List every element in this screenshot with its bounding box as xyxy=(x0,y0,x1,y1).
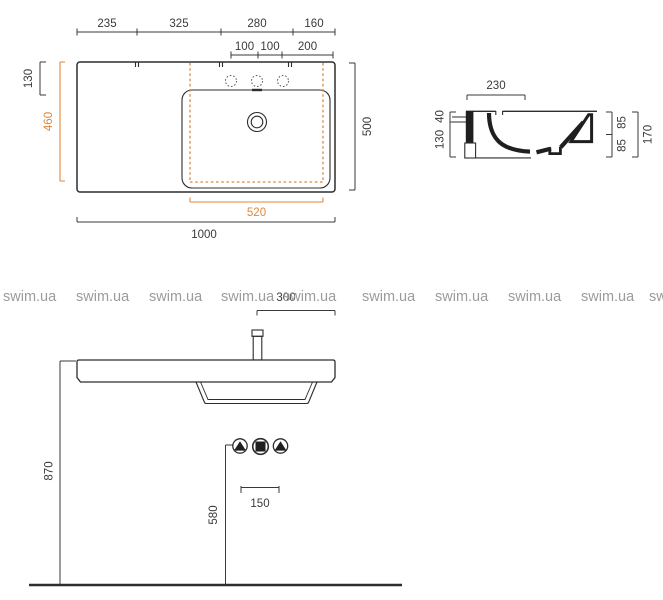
watermark: swim.ua xyxy=(649,289,663,305)
dim-hole-seg-1: 100 xyxy=(235,41,254,53)
watermark: swim.ua xyxy=(581,289,634,305)
dim-rear-lower: 85 xyxy=(617,139,629,152)
front-dim-outlet-height: 580 xyxy=(208,445,233,585)
plan-dim-row2: 100 100 200 xyxy=(231,41,333,59)
wall-fixing-ticks xyxy=(452,117,466,122)
dim-front-height: 130 xyxy=(435,130,447,149)
watermark: swim.ua xyxy=(283,289,336,305)
section-dim-top: 230 xyxy=(467,80,525,100)
section-profile xyxy=(452,110,597,158)
dim-cutout-depth: 460 xyxy=(43,112,55,131)
dim-cutout-width: 520 xyxy=(247,207,266,219)
watermark: swim.ua xyxy=(508,289,561,305)
front-dim-rim-height: 870 xyxy=(44,361,77,585)
watermark: swim.ua xyxy=(76,289,129,305)
watermark: swim.ua xyxy=(362,289,415,305)
dim-width-seg-3: 280 xyxy=(247,18,266,30)
drain-outlet-icon xyxy=(253,439,269,455)
front-wall-solid xyxy=(466,111,474,143)
plan-sink-outline xyxy=(77,62,335,192)
dim-outlet-height: 580 xyxy=(208,505,220,524)
front-dim-supply-spacing: 150 xyxy=(241,486,279,510)
dim-total-height: 170 xyxy=(643,125,655,144)
dim-rim-height: 870 xyxy=(44,461,56,480)
dim-width-seg-1: 235 xyxy=(97,18,116,30)
washbasin-technical-drawing: { "watermark": { "text": "swim.ua", "col… xyxy=(0,0,663,600)
dim-hole-seg-2: 100 xyxy=(260,41,279,53)
front-bowl xyxy=(196,382,317,404)
watermark: swim.ua xyxy=(149,289,202,305)
section-dim-right: 85 85 170 xyxy=(606,112,655,157)
dim-deck-thickness: 40 xyxy=(435,110,447,123)
supply-symbols xyxy=(233,439,288,455)
plan-view: 235 325 280 160 100 100 200 130 460 500 … xyxy=(23,18,374,241)
front-faucet xyxy=(252,330,263,360)
front-lower-box xyxy=(465,143,476,158)
dim-total-width: 1000 xyxy=(191,229,217,241)
basin-curve-band xyxy=(489,113,530,152)
watermark: swim.ua xyxy=(435,289,488,305)
dim-rim-width: 230 xyxy=(486,80,505,92)
hot-water-icon xyxy=(233,439,247,453)
dim-width-seg-4: 160 xyxy=(304,18,323,30)
plan-dim-left: 130 460 xyxy=(23,62,65,181)
watermark: swim.ua xyxy=(221,289,274,305)
faucet-spout xyxy=(252,330,263,336)
front-view: 300 870 580 xyxy=(29,292,402,585)
dim-hole-seg-3: 200 xyxy=(298,41,317,53)
front-sink-body xyxy=(77,360,335,382)
faucet-body xyxy=(253,336,262,360)
dim-width-seg-2: 325 xyxy=(169,18,188,30)
section-view: 230 40 130 85 85 170 xyxy=(435,80,655,158)
rear-triangle xyxy=(571,115,592,142)
watermark: swim.ua xyxy=(3,289,56,305)
dim-ledge-depth: 130 xyxy=(23,69,35,88)
plan-dim-bottom: 520 1000 xyxy=(77,198,335,242)
dim-rear-upper: 85 xyxy=(617,116,629,129)
plan-dim-right: 500 xyxy=(349,63,374,190)
dim-total-depth: 500 xyxy=(362,117,374,136)
cold-water-icon xyxy=(273,439,287,453)
dim-supply-spacing: 150 xyxy=(250,498,269,510)
plan-dim-row1: 235 325 280 160 xyxy=(77,18,335,36)
